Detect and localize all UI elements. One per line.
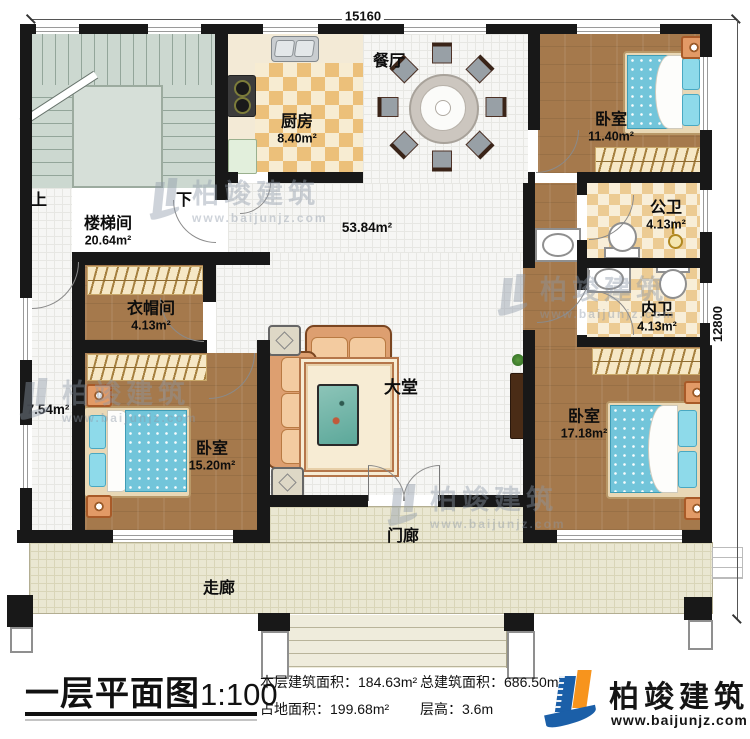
dining-table-center: [435, 100, 451, 116]
wall: [577, 172, 712, 183]
dining-chair: [432, 151, 452, 172]
nightstand: [86, 384, 112, 407]
bed: [623, 51, 706, 135]
kitchen-sink-icon: [271, 36, 319, 62]
sheet-title-block: 一层平面图1:100: [25, 666, 278, 715]
sink-icon: [594, 268, 624, 290]
wall: [215, 24, 228, 200]
wall: [523, 183, 535, 268]
wardrobe: [87, 354, 207, 381]
corner-column-base: [10, 627, 33, 653]
company-website: www.baijunjz.com: [611, 712, 748, 728]
room-label-kitchen: 厨房8.40m²: [277, 114, 317, 147]
nightstand: [86, 495, 112, 518]
corridor-floor: [30, 543, 712, 613]
wall: [577, 258, 712, 268]
company-logo: 柏竣建筑 www.baijunjz.com: [543, 668, 743, 734]
title-underline-shadow: [25, 719, 257, 721]
porch-column: [258, 613, 290, 631]
wall: [257, 340, 270, 530]
sink-icon: [542, 233, 574, 257]
height-value: 3.6m: [462, 701, 493, 717]
wardrobe: [592, 348, 702, 375]
room-label-bath-private: 内卫4.13m²: [637, 302, 677, 335]
room-label-lobby: 大堂: [384, 378, 418, 398]
room-label-corridor: 走廊: [203, 580, 235, 598]
stair-landing: [72, 85, 163, 188]
side-steps: [712, 547, 743, 579]
corner-column-base: [688, 620, 713, 650]
stair-treads-right: [163, 85, 215, 188]
hall-floor: [228, 183, 523, 252]
dimension-top: 15160: [342, 9, 384, 24]
toilet-icon: [659, 269, 687, 299]
dimension-right: 12800: [710, 303, 725, 345]
room-label-bath-public: 公卫4.13m²: [646, 200, 686, 233]
floor-area-value: 184.63m²: [358, 674, 417, 690]
side-table: [271, 467, 304, 498]
dining-chair: [486, 97, 507, 117]
window: [404, 24, 486, 34]
room-label-cloakroom: 衣帽间4.13m²: [127, 301, 175, 334]
stair-down-label: 下: [176, 192, 192, 210]
bed: [606, 401, 706, 499]
washbasin-counter: [535, 228, 581, 262]
floor-area-label: 本层建筑面积：: [260, 674, 358, 690]
window: [113, 532, 233, 542]
wall: [318, 24, 404, 34]
land-area-label: 占地面积：: [260, 701, 330, 717]
wall: [577, 183, 587, 195]
stove-icon: [227, 75, 256, 117]
room-label-bedroom-sw: 卧室15.20m²: [189, 441, 236, 474]
corner-column: [7, 595, 33, 627]
floor-plan-sheet: 楼梯间20.64m² 上 下 厨房8.40m² 餐厅 53.84m² 卧室11.…: [0, 0, 750, 739]
room-label-porch: 门廊: [387, 528, 419, 546]
wall: [528, 172, 535, 183]
west-hallway-floor: [30, 188, 72, 530]
wall: [270, 495, 368, 507]
wall: [20, 24, 32, 298]
dining-chair: [378, 97, 399, 117]
front-steps: [288, 615, 507, 668]
wall: [72, 252, 85, 530]
window: [557, 532, 682, 542]
corner-column: [684, 597, 712, 620]
room-label-dining: 餐厅: [373, 53, 405, 71]
stair-up-label: 上: [31, 192, 47, 210]
room-label-bedroom-se: 卧室17.18m²: [561, 409, 608, 442]
window: [20, 298, 32, 360]
coffee-table: [317, 384, 359, 446]
dimension-line-right: [737, 19, 738, 619]
total-area-label: 总建筑面积：: [420, 674, 504, 690]
wall: [203, 252, 216, 302]
floor-drain-icon: [668, 234, 683, 249]
side-table: [268, 325, 301, 356]
window: [148, 24, 201, 34]
wall: [228, 172, 238, 183]
company-logo-icon: [543, 670, 605, 732]
wall: [523, 530, 557, 543]
wall: [268, 172, 363, 183]
wall: [700, 323, 712, 543]
bed: [83, 406, 191, 498]
wall: [85, 340, 207, 353]
window: [700, 57, 712, 130]
wall: [79, 24, 148, 34]
open-area-label: 53.84m²: [342, 219, 392, 237]
window: [700, 190, 712, 232]
wall: [700, 24, 712, 57]
wall: [201, 24, 263, 34]
hallway-west-area-label: 7.54m²: [27, 401, 70, 419]
wall: [72, 252, 270, 265]
window: [263, 24, 318, 34]
porch-column: [504, 613, 534, 631]
wall: [17, 530, 113, 543]
dining-chair: [432, 43, 452, 64]
window: [20, 425, 32, 488]
title-underline: [25, 712, 257, 716]
room-label-bedroom-ne: 卧室11.40m²: [588, 112, 634, 145]
sheet-title: 一层平面图: [25, 675, 200, 713]
stair-treads-top: [30, 33, 215, 85]
room-label-stairwell: 楼梯间20.64m²: [84, 216, 132, 249]
company-name: 柏竣建筑: [609, 672, 749, 716]
door-arc: [537, 270, 590, 323]
hanger-rack: [87, 266, 203, 295]
wall: [438, 495, 523, 507]
fridge-icon: [228, 139, 257, 174]
wall: [523, 330, 535, 530]
wall: [528, 24, 540, 130]
window: [36, 24, 79, 34]
height-label: 层高：: [420, 701, 462, 717]
wall: [577, 337, 712, 347]
wall: [682, 530, 712, 543]
land-area-value: 199.68m²: [330, 701, 389, 717]
wardrobe: [595, 147, 702, 175]
wall: [233, 530, 270, 543]
window: [577, 24, 660, 34]
